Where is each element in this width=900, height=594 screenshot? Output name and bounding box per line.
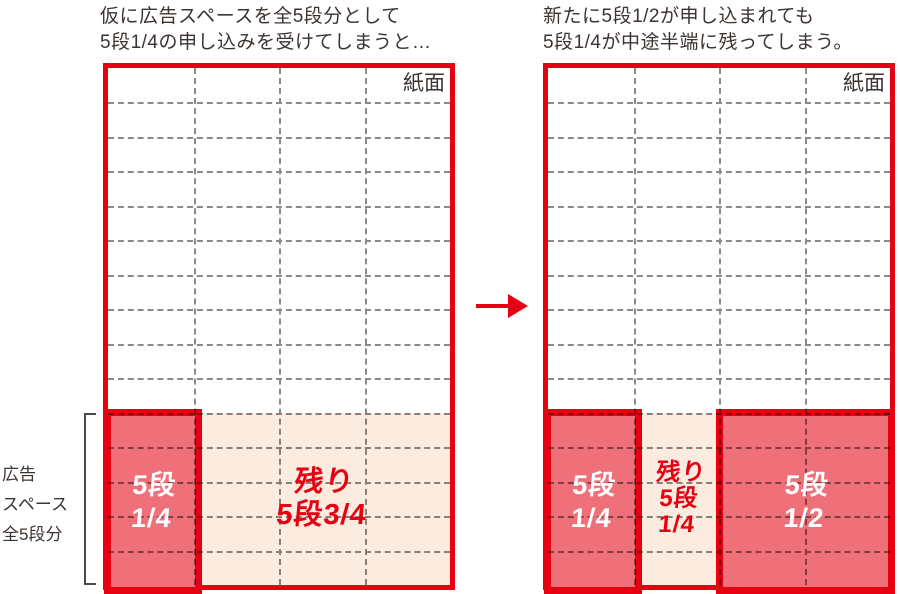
right-block-half-line2: 1/2 [782,502,825,534]
side-label-line2: スペース [2,490,68,520]
left-block-quarter-line2: 1/4 [130,502,173,534]
right-block-quarter-line2: 1/4 [570,502,613,534]
right-remainder-line2: 5段 [658,486,700,512]
left-paper-label: 紙面 [360,67,445,97]
left-remainder-line2: 5段3/4 [275,499,368,532]
ad-space-bracket [84,413,96,585]
left-block-quarter-line1: 5段 [131,469,178,501]
side-label-line1: 広告 [2,460,68,490]
left-remainder-line1: 残り [293,466,356,499]
side-label-line3: 全5段分 [2,520,68,550]
right-panel-title: 新たに5段1/2が申し込まれても 5段1/4が中途半端に残ってしまう。 [543,4,853,56]
diagram-ad-space: 仮に広告スペースを全5段分として 5段1/4の申し込みを受けてしまうと… 新たに… [0,0,900,594]
arrow-head [508,294,528,318]
arrow-shaft [476,304,510,308]
right-title-line1: 新たに5段1/2が申し込まれても [543,4,853,30]
left-panel-title: 仮に広告スペースを全5段分として 5段1/4の申し込みを受けてしまうと… [100,4,431,56]
right-title-line2: 5段1/4が中途半端に残ってしまう。 [543,30,853,56]
right-remainder-line3: 1/4 [657,512,696,538]
ad-space-side-label: 広告 スペース 全5段分 [2,460,68,550]
right-paper-label: 紙面 [800,67,885,97]
right-remainder-line1: 残り [655,460,707,486]
right-block-half-line1: 5段 [783,469,830,501]
right-block-quarter-line1: 5段 [571,469,618,501]
right-block-half-label: 5段 1/2 [708,409,900,594]
left-remainder-label: 残り 5段3/4 [188,413,457,585]
left-title-line2: 5段1/4の申し込みを受けてしまうと… [100,30,431,56]
left-title-line1: 仮に広告スペースを全5段分として [100,4,431,30]
